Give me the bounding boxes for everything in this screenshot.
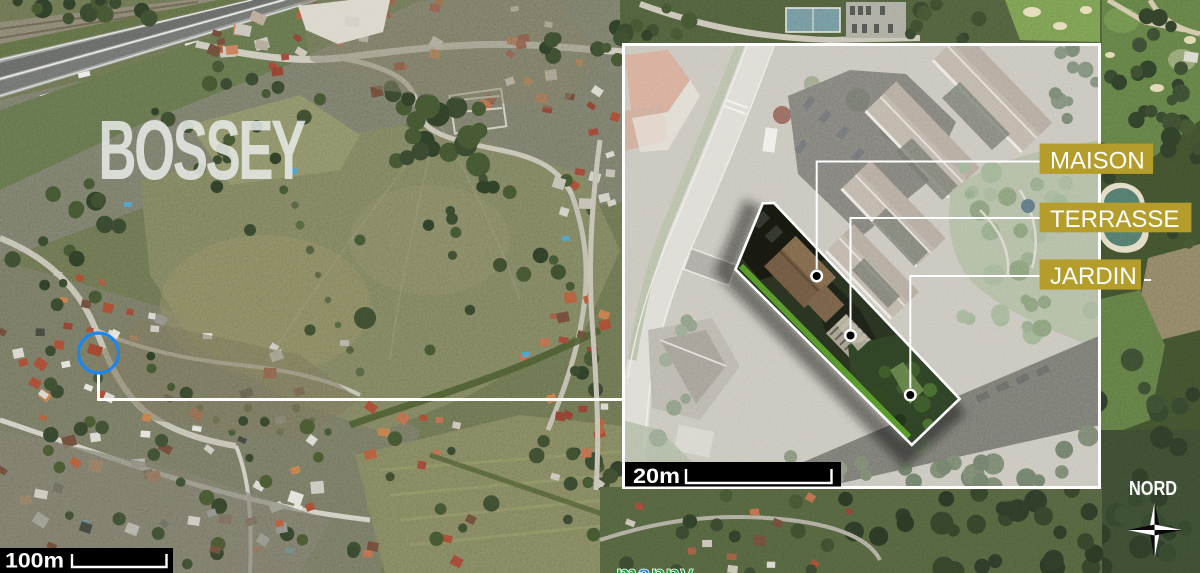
svg-text:20m: 20m bbox=[633, 464, 680, 488]
svg-text:BOSSEY: BOSSEY bbox=[98, 102, 306, 197]
svg-text:100m: 100m bbox=[5, 550, 64, 573]
svg-text:MAISON: MAISON bbox=[1050, 148, 1145, 175]
svg-text:mappy: mappy bbox=[616, 561, 694, 573]
svg-text:NORD: NORD bbox=[1129, 478, 1177, 500]
svg-text:TERRASSE: TERRASSE bbox=[1050, 206, 1179, 233]
svg-text:JARDIN: JARDIN bbox=[1050, 263, 1137, 290]
